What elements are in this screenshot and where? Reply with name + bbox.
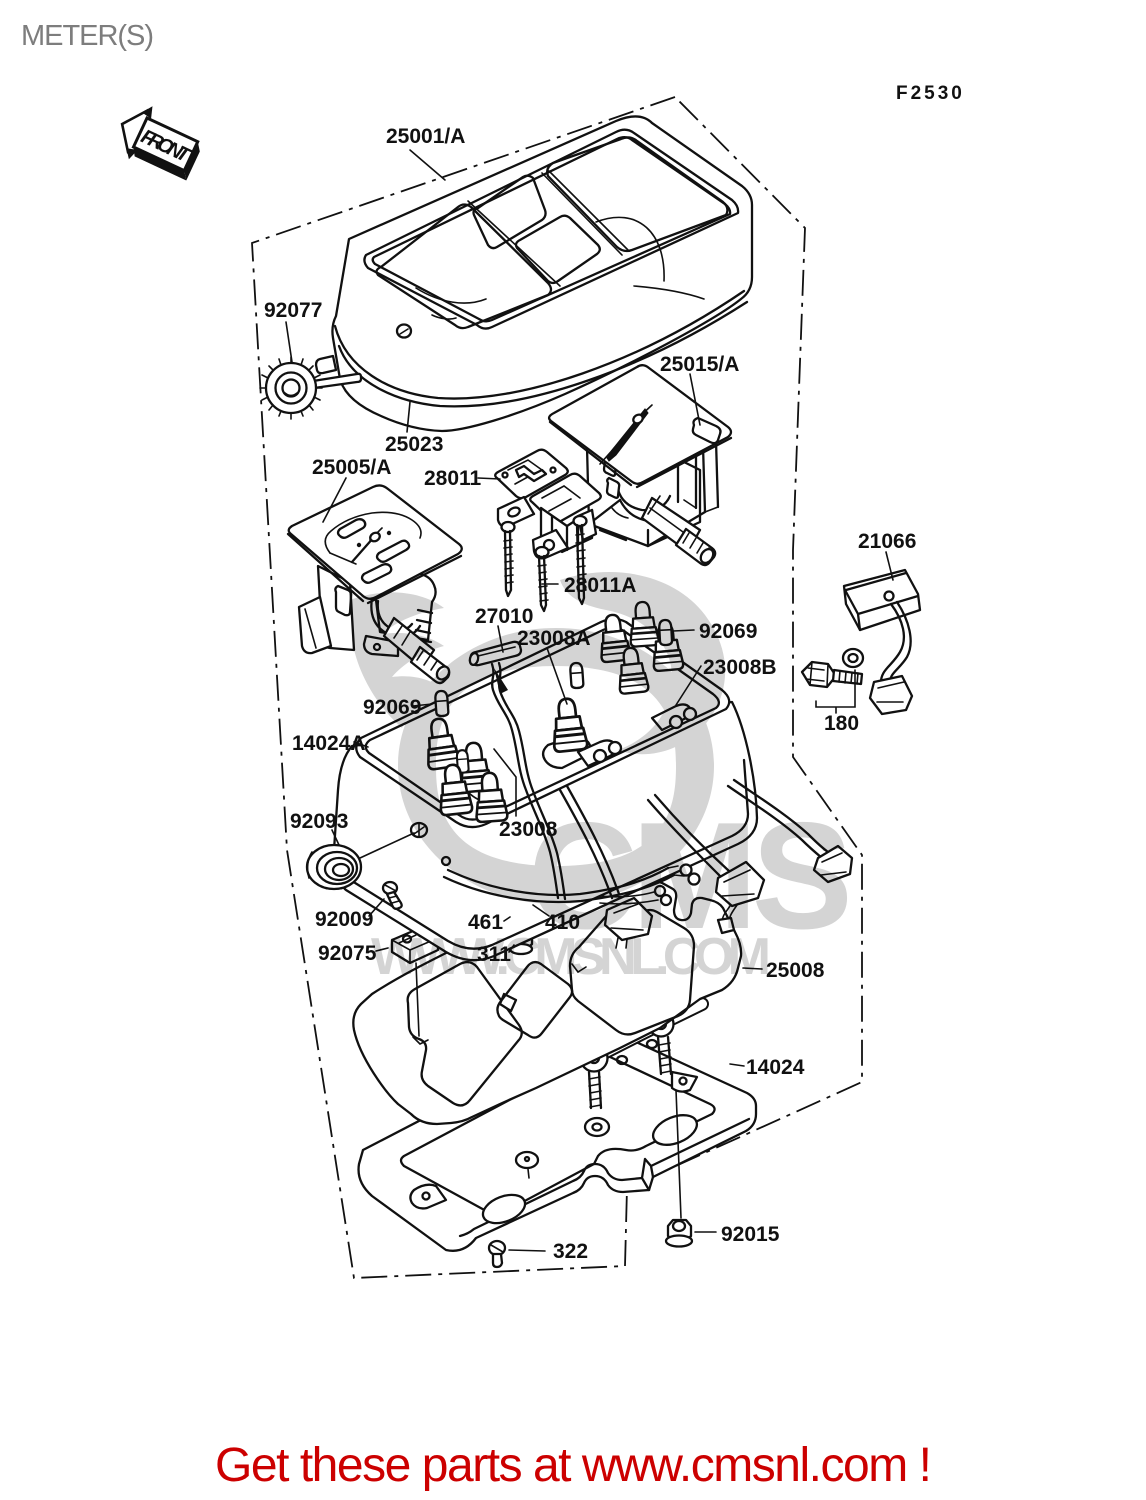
svg-text:25015/A: 25015/A — [660, 353, 739, 376]
svg-text:28011: 28011 — [424, 467, 482, 490]
svg-text:METER(S): METER(S) — [21, 20, 154, 52]
svg-text:25001/A: 25001/A — [386, 125, 465, 148]
svg-text:27010: 27010 — [475, 605, 533, 628]
svg-text:25008: 25008 — [766, 959, 825, 982]
svg-text:92075: 92075 — [318, 942, 377, 965]
svg-text:21066: 21066 — [858, 530, 916, 553]
svg-text:F2530: F2530 — [896, 83, 965, 104]
svg-text:WWW.CMSNL.COM: WWW.CMSNL.COM — [371, 928, 771, 986]
svg-text:14024: 14024 — [746, 1056, 805, 1079]
svg-text:92077: 92077 — [264, 299, 322, 322]
svg-text:Get these parts at www.cmsnl.c: Get these parts at www.cmsnl.com ! — [215, 1439, 932, 1492]
svg-text:25023: 25023 — [385, 433, 443, 456]
svg-text:322: 322 — [553, 1240, 588, 1263]
svg-text:92009: 92009 — [315, 908, 373, 931]
svg-text:180: 180 — [824, 712, 859, 735]
svg-text:92093: 92093 — [290, 810, 348, 833]
svg-text:92015: 92015 — [721, 1223, 780, 1246]
svg-text:25005/A: 25005/A — [312, 456, 391, 479]
svg-text:14024A: 14024A — [292, 732, 366, 755]
